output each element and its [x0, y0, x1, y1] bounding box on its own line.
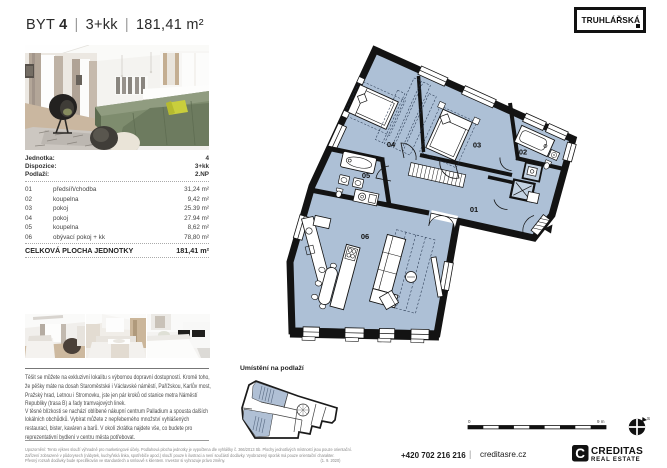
svg-text:REAL ESTATE: REAL ESTATE	[591, 457, 640, 463]
svg-text:06: 06	[361, 232, 369, 241]
svg-text:05: 05	[362, 171, 370, 180]
svg-text:04: 04	[387, 140, 396, 149]
svg-text:02: 02	[519, 148, 527, 157]
svg-text:C: C	[575, 446, 585, 461]
svg-text:01: 01	[470, 205, 478, 214]
svg-text:0: 0	[468, 419, 471, 424]
svg-text:03: 03	[473, 141, 481, 150]
svg-text:CREDITAS: CREDITAS	[591, 446, 643, 457]
svg-text:S: S	[647, 416, 650, 421]
svg-text:9 m: 9 m	[597, 419, 605, 424]
